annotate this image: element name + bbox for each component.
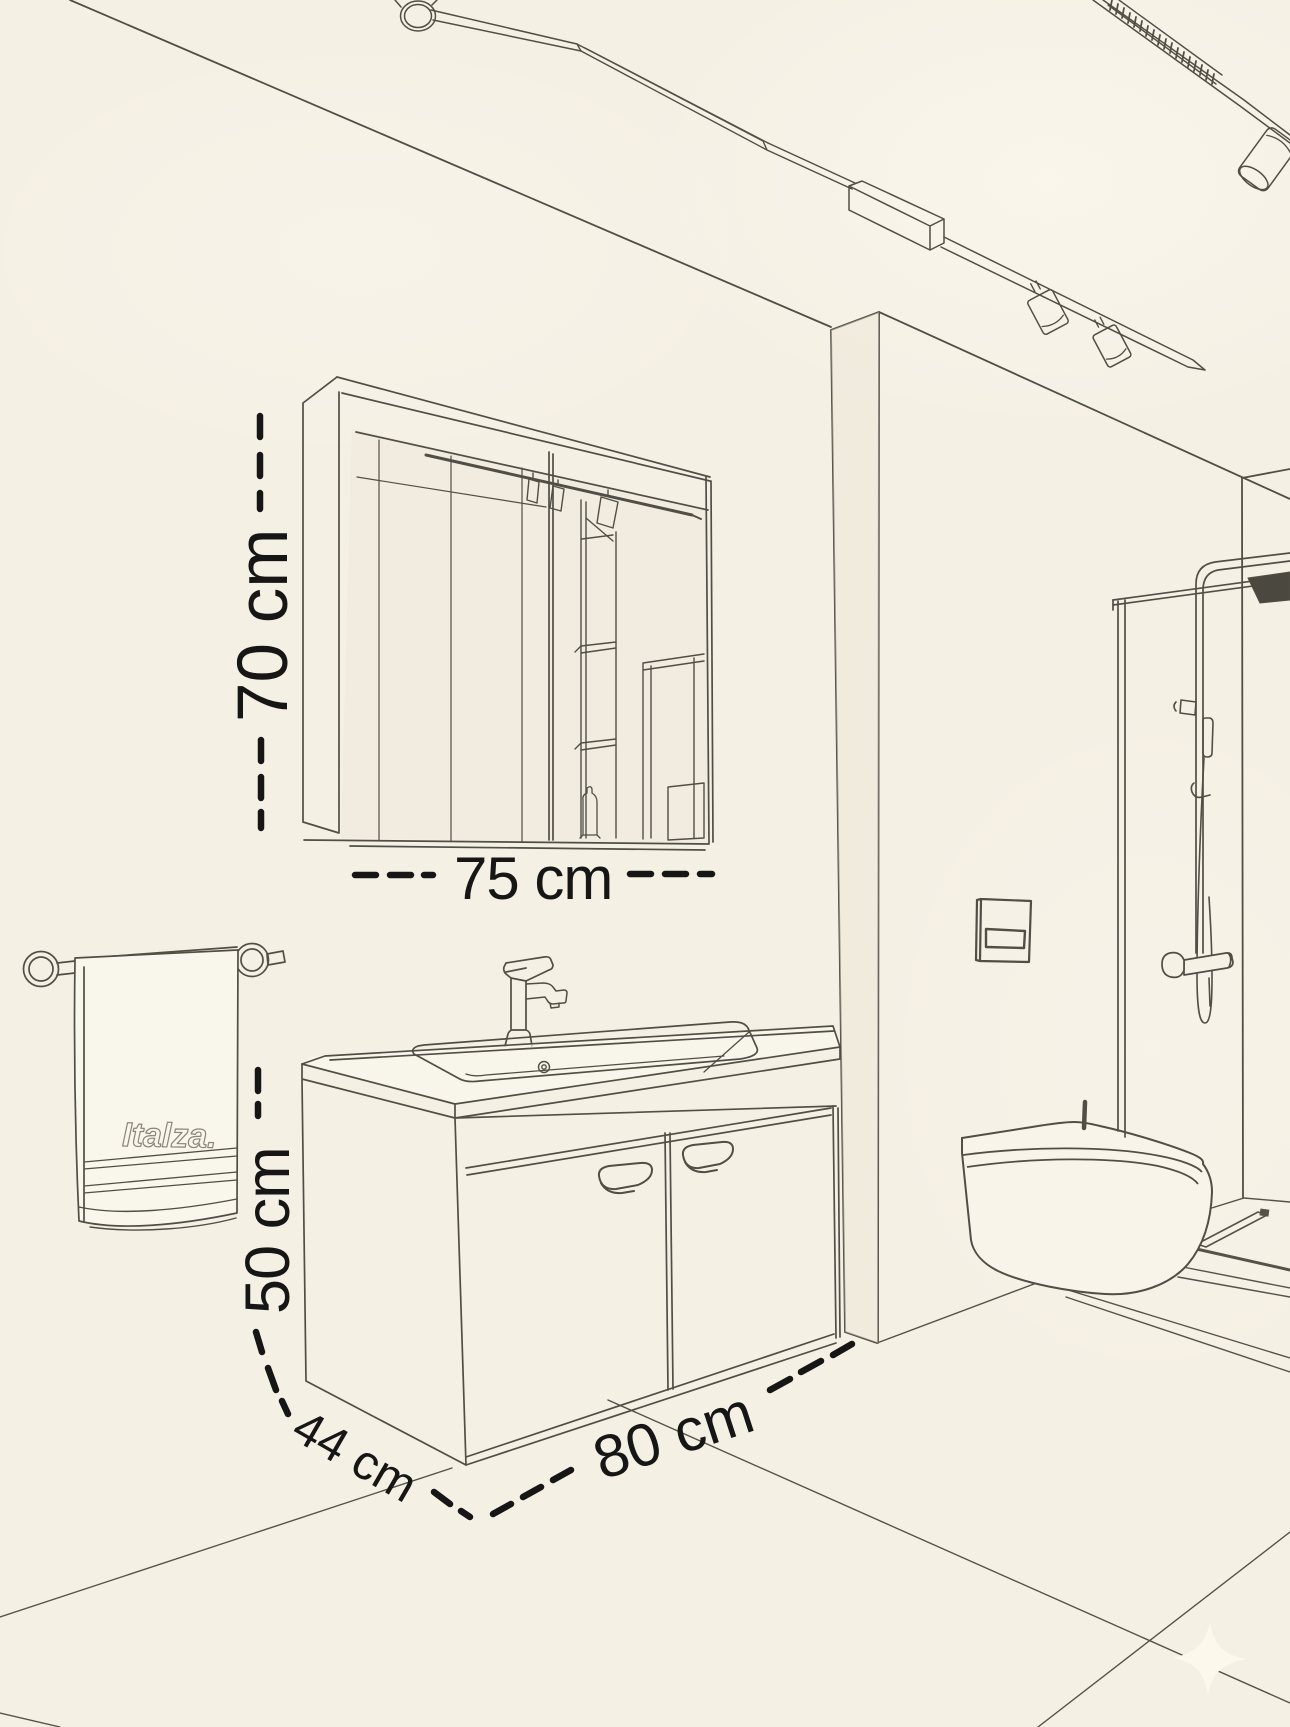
- svg-text:50 cm: 50 cm: [233, 1147, 303, 1314]
- svg-text:Italza.: Italza.: [122, 1116, 217, 1156]
- svg-text:70 cm: 70 cm: [224, 529, 303, 722]
- svg-text:75 cm: 75 cm: [454, 845, 612, 912]
